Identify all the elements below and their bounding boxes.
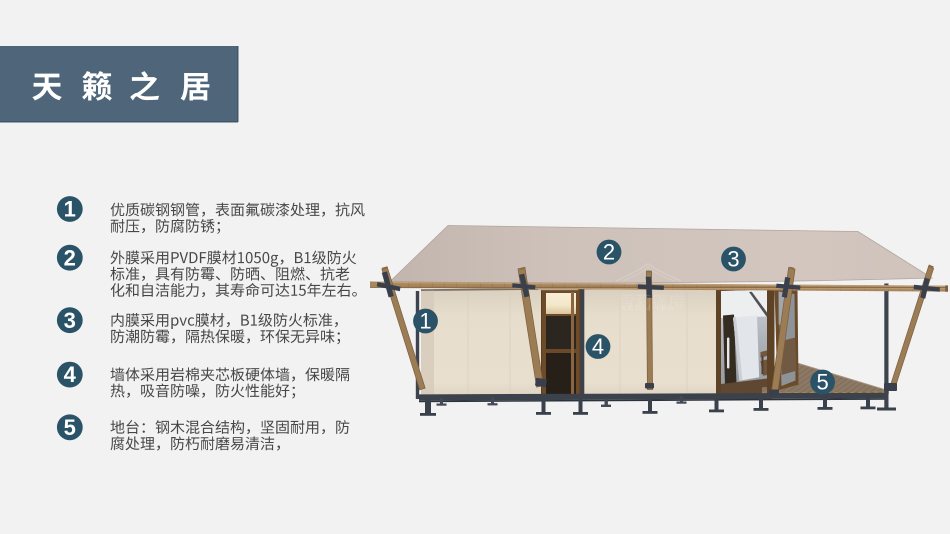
svg-text:1: 1 <box>419 309 431 334</box>
svg-text:3: 3 <box>64 308 76 333</box>
svg-text:5: 5 <box>64 415 76 440</box>
svg-text:4: 4 <box>64 362 77 387</box>
svg-text:2: 2 <box>64 245 76 270</box>
svg-text:3: 3 <box>727 247 739 272</box>
svg-text:5: 5 <box>816 370 828 395</box>
svg-text:1: 1 <box>64 197 76 222</box>
svg-text:2: 2 <box>603 240 615 265</box>
svg-text:4: 4 <box>592 334 604 359</box>
